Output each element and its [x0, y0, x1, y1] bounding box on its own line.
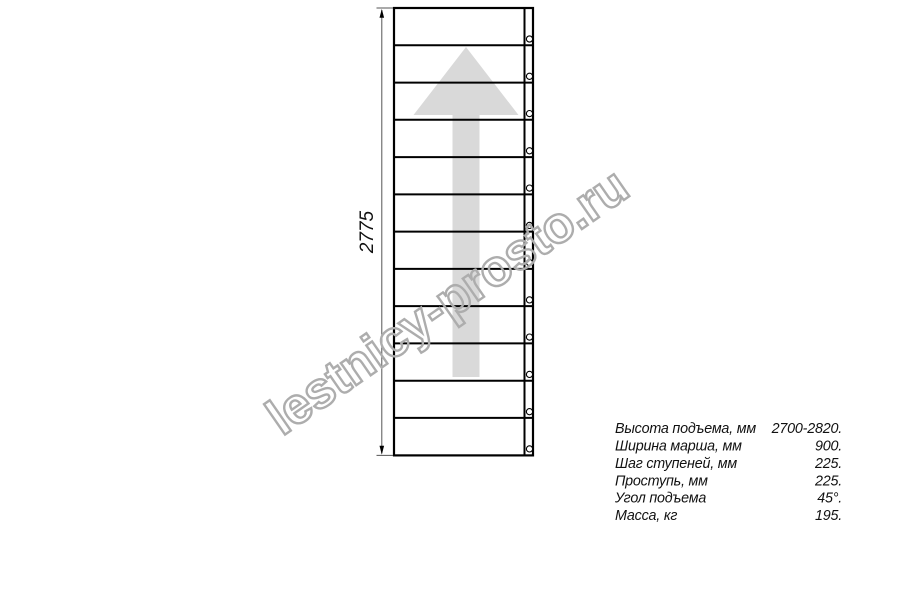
svg-text:195.: 195. — [815, 508, 842, 524]
svg-text:Высота подъема, мм: Высота подъема, мм — [615, 421, 756, 437]
svg-text:900.: 900. — [815, 439, 842, 455]
svg-text:2775: 2775 — [357, 210, 378, 254]
svg-text:225.: 225. — [814, 473, 842, 489]
svg-text:Шаг ступеней, мм: Шаг ступеней, мм — [615, 456, 737, 472]
svg-text:Угол подъема: Угол подъема — [614, 491, 706, 507]
svg-text:45°.: 45°. — [817, 491, 842, 507]
svg-text:Ширина марша, мм: Ширина марша, мм — [615, 439, 742, 455]
svg-text:Масса, кг: Масса, кг — [615, 508, 677, 524]
svg-text:2700-2820.: 2700-2820. — [771, 421, 842, 437]
svg-text:Проступь, мм: Проступь, мм — [615, 473, 708, 489]
svg-text:225.: 225. — [814, 456, 842, 472]
